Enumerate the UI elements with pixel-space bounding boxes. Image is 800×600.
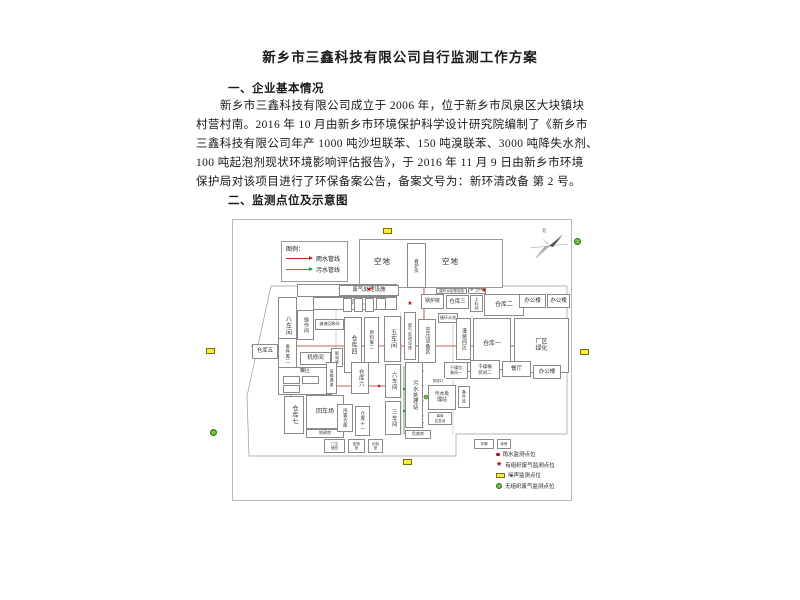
plan-box-empty: [302, 376, 319, 384]
plan-box-empty: [283, 385, 300, 393]
noise-monitor-marker-icon: [383, 228, 392, 234]
monitor-legend-label: 噪声监测点位: [508, 471, 541, 479]
plan-box: 锅炉房: [421, 294, 444, 309]
plan-box: 门卫 值班: [324, 439, 345, 453]
paragraph-line: 三鑫科技有限公司年产 1000 吨沙坦联苯、150 吨溴联苯、3000 吨降失水…: [196, 135, 598, 154]
plan-box: 餐厅: [502, 361, 531, 377]
plan-box-empty: [343, 298, 352, 312]
monitor-legend-item: 噪声监测点位: [496, 470, 570, 481]
plan-box: 碱液回收间: [315, 319, 344, 330]
plan-box: 三车间: [385, 401, 401, 435]
monitor-legend: 雨水监测点位 ★ 有组织废气监测点位 噪声监测点位 无组织废气监测点位: [496, 449, 570, 491]
plan-box: 空压设备区: [418, 319, 436, 363]
noise-point-icon: [496, 473, 505, 478]
paragraph-line: 100 吨起泡剂现状环境影响评估报告》，于 2016 年 11 月 9 日由新乡…: [196, 154, 598, 173]
plan-box: 六车间: [385, 364, 401, 398]
plan-box: 仓库五: [252, 344, 278, 359]
plan-box: 备件库二: [278, 338, 297, 369]
plan-box: 危废库: [405, 430, 431, 439]
plan-box: 灌装间区: [456, 318, 471, 360]
plan-box: 办公楼: [547, 294, 570, 308]
section1-heading: 一、企业基本情况: [228, 80, 324, 96]
plan-box-empty: [376, 298, 386, 310]
monitor-legend-item: 无组织废气监测点位: [496, 481, 570, 492]
paragraph-line: 新乡市三鑫科技有限公司成立于 2006 年，位于新乡市凤泉区大块镇块: [196, 97, 598, 116]
monitor-legend-item: 雨水监测点位: [496, 449, 570, 460]
plan-box: 备件库: [458, 386, 470, 408]
plan-box: 废气处理设施: [404, 312, 416, 360]
plan-box: 排放口: [430, 378, 446, 384]
plan-box: 车棚: [474, 439, 494, 449]
section2-heading: 二、监测点位及示意图: [228, 192, 348, 208]
site-plan-diagram: 图例： 雨水管线 污水管线 空地 看护房 空地 北 仓库十仓库九八车: [232, 219, 572, 501]
monitor-legend-label: 雨水监测点位: [503, 450, 536, 458]
plan-box: 仓库二: [484, 294, 524, 316]
plan-box: 事故 应急池: [428, 412, 452, 425]
plan-box-empty: [283, 376, 300, 384]
plan-box: 化验 室: [368, 439, 383, 453]
plan-box: 办公楼: [519, 294, 546, 308]
fugitive-gas-monitor-marker-icon: [210, 429, 217, 436]
plan-box-empty: [365, 298, 374, 312]
monitor-legend-label: 有组织废气监测点位: [505, 461, 555, 469]
organized-gas-point-icon: ★: [496, 461, 502, 468]
document-page: { "document": { "title": "新乡市三鑫科技有限公司自行监…: [0, 0, 800, 600]
rainwater-point-icon: [496, 453, 500, 457]
plan-box: 办公楼: [533, 365, 561, 379]
noise-monitor-marker-icon: [206, 348, 215, 354]
organized-gas-monitor-marker-icon: ★: [481, 288, 486, 294]
plan-box: 循环水处理设施: [436, 288, 467, 294]
plan-box-empty: [354, 298, 363, 312]
plan-box: 原料库二: [364, 317, 379, 363]
fugitive-gas-monitor-marker-icon: [574, 238, 581, 245]
plan-box: 污水处 理站: [428, 385, 456, 410]
plan-box: 上料间: [470, 295, 483, 312]
plan-box: 操作间: [297, 310, 314, 340]
noise-monitor-marker-icon: [580, 349, 589, 355]
plan-box: 配电 室: [348, 439, 365, 453]
page-title: 新乡市三鑫科技有限公司自行监测工作方案: [0, 46, 800, 66]
plan-box: 库房: [497, 439, 511, 449]
monitor-legend-item: ★ 有组织废气监测点位: [496, 460, 570, 471]
plan-box: 干燥包 装间一: [444, 362, 468, 379]
plan-box: 运输通道: [326, 362, 337, 394]
plan-box: 仓库十一: [355, 406, 370, 436]
organized-gas-monitor-marker-icon: ★: [407, 301, 412, 307]
plan-box: 干燥桶 装间二: [470, 360, 500, 379]
paragraph-line: 保护局对该项目进行了环保备案公告，备案文号为：新环清改备 第 2 号。: [196, 173, 598, 192]
plan-box: 仓库六: [351, 362, 369, 394]
monitor-legend-label: 无组织废气监测点位: [505, 482, 555, 490]
plan-box: 五车间: [384, 316, 401, 362]
plan-box: 闲置仓库: [337, 404, 353, 432]
organized-gas-monitor-marker-icon: ★: [366, 287, 371, 293]
plan-box: 循环水池: [438, 313, 458, 323]
noise-monitor-marker-icon: [403, 459, 412, 465]
plan-box: 污水处理站: [405, 362, 423, 428]
intro-paragraph: 新乡市三鑫科技有限公司成立于 2006 年，位于新乡市凤泉区大块镇块 村营村南。…: [196, 97, 598, 192]
paragraph-line: 村营村南。2016 年 10 月由新乡市环境保护科学设计研究院编制了《新乡市: [196, 116, 598, 135]
fugitive-gas-point-icon: [496, 483, 502, 489]
plan-box: 仓库三: [446, 295, 469, 309]
plan-box: 仓库七: [284, 396, 304, 434]
